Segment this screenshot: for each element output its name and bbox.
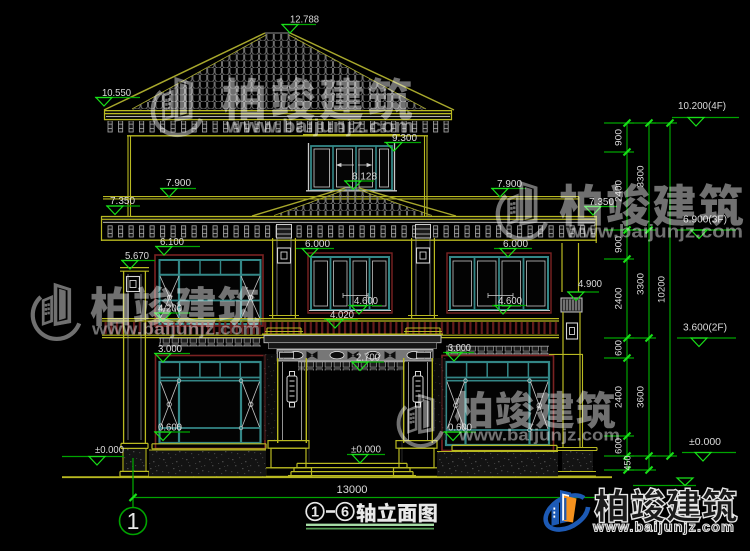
svg-text:www.baijunjz.com: www.baijunjz.com bbox=[225, 117, 414, 138]
svg-text:2400: 2400 bbox=[614, 386, 625, 408]
svg-text:10200: 10200 bbox=[657, 276, 668, 303]
svg-text:10.550: 10.550 bbox=[102, 87, 131, 99]
svg-text:600: 600 bbox=[614, 340, 625, 356]
svg-text:4.900: 4.900 bbox=[578, 278, 602, 290]
svg-text:www.baijunjz.com: www.baijunjz.com bbox=[565, 221, 743, 242]
svg-text:±0.000: ±0.000 bbox=[689, 436, 721, 448]
svg-text:13000: 13000 bbox=[337, 484, 368, 496]
svg-text:±0.000: ±0.000 bbox=[351, 444, 381, 456]
svg-text:4.600: 4.600 bbox=[354, 295, 378, 307]
svg-text:2.700: 2.700 bbox=[356, 352, 380, 364]
svg-text:7.900: 7.900 bbox=[166, 177, 191, 189]
svg-text:www.baijunjz.com: www.baijunjz.com bbox=[592, 520, 735, 535]
svg-text:7.900: 7.900 bbox=[497, 178, 522, 190]
svg-text:5.670: 5.670 bbox=[125, 250, 149, 262]
svg-text:450: 450 bbox=[623, 456, 634, 471]
svg-text:3.600(2F): 3.600(2F) bbox=[683, 322, 727, 334]
svg-text:1: 1 bbox=[127, 508, 140, 534]
svg-text:±0.000: ±0.000 bbox=[95, 444, 124, 456]
svg-text:www.baijunjz.com: www.baijunjz.com bbox=[91, 321, 260, 339]
svg-text:6.100: 6.100 bbox=[160, 236, 184, 248]
svg-text:900: 900 bbox=[614, 129, 625, 146]
svg-text:4.600: 4.600 bbox=[498, 295, 522, 307]
svg-text:3300: 3300 bbox=[636, 273, 647, 295]
svg-text:www.baijunjz.com: www.baijunjz.com bbox=[458, 427, 620, 445]
svg-text:7.350: 7.350 bbox=[110, 195, 135, 207]
svg-text:3.000: 3.000 bbox=[448, 342, 471, 354]
svg-text:0.600: 0.600 bbox=[158, 422, 182, 434]
svg-text:3600: 3600 bbox=[636, 386, 647, 408]
svg-text:2400: 2400 bbox=[614, 288, 625, 310]
svg-text:3300: 3300 bbox=[636, 166, 647, 188]
svg-text:12.788: 12.788 bbox=[290, 14, 319, 26]
svg-text:6: 6 bbox=[341, 505, 349, 521]
svg-text:8.128: 8.128 bbox=[352, 171, 377, 183]
svg-text:3.000: 3.000 bbox=[158, 343, 182, 355]
svg-text:6.000: 6.000 bbox=[305, 238, 330, 250]
svg-text:1: 1 bbox=[311, 505, 319, 521]
svg-text:4.020: 4.020 bbox=[330, 309, 354, 321]
svg-text:10.200(4F): 10.200(4F) bbox=[678, 100, 726, 112]
